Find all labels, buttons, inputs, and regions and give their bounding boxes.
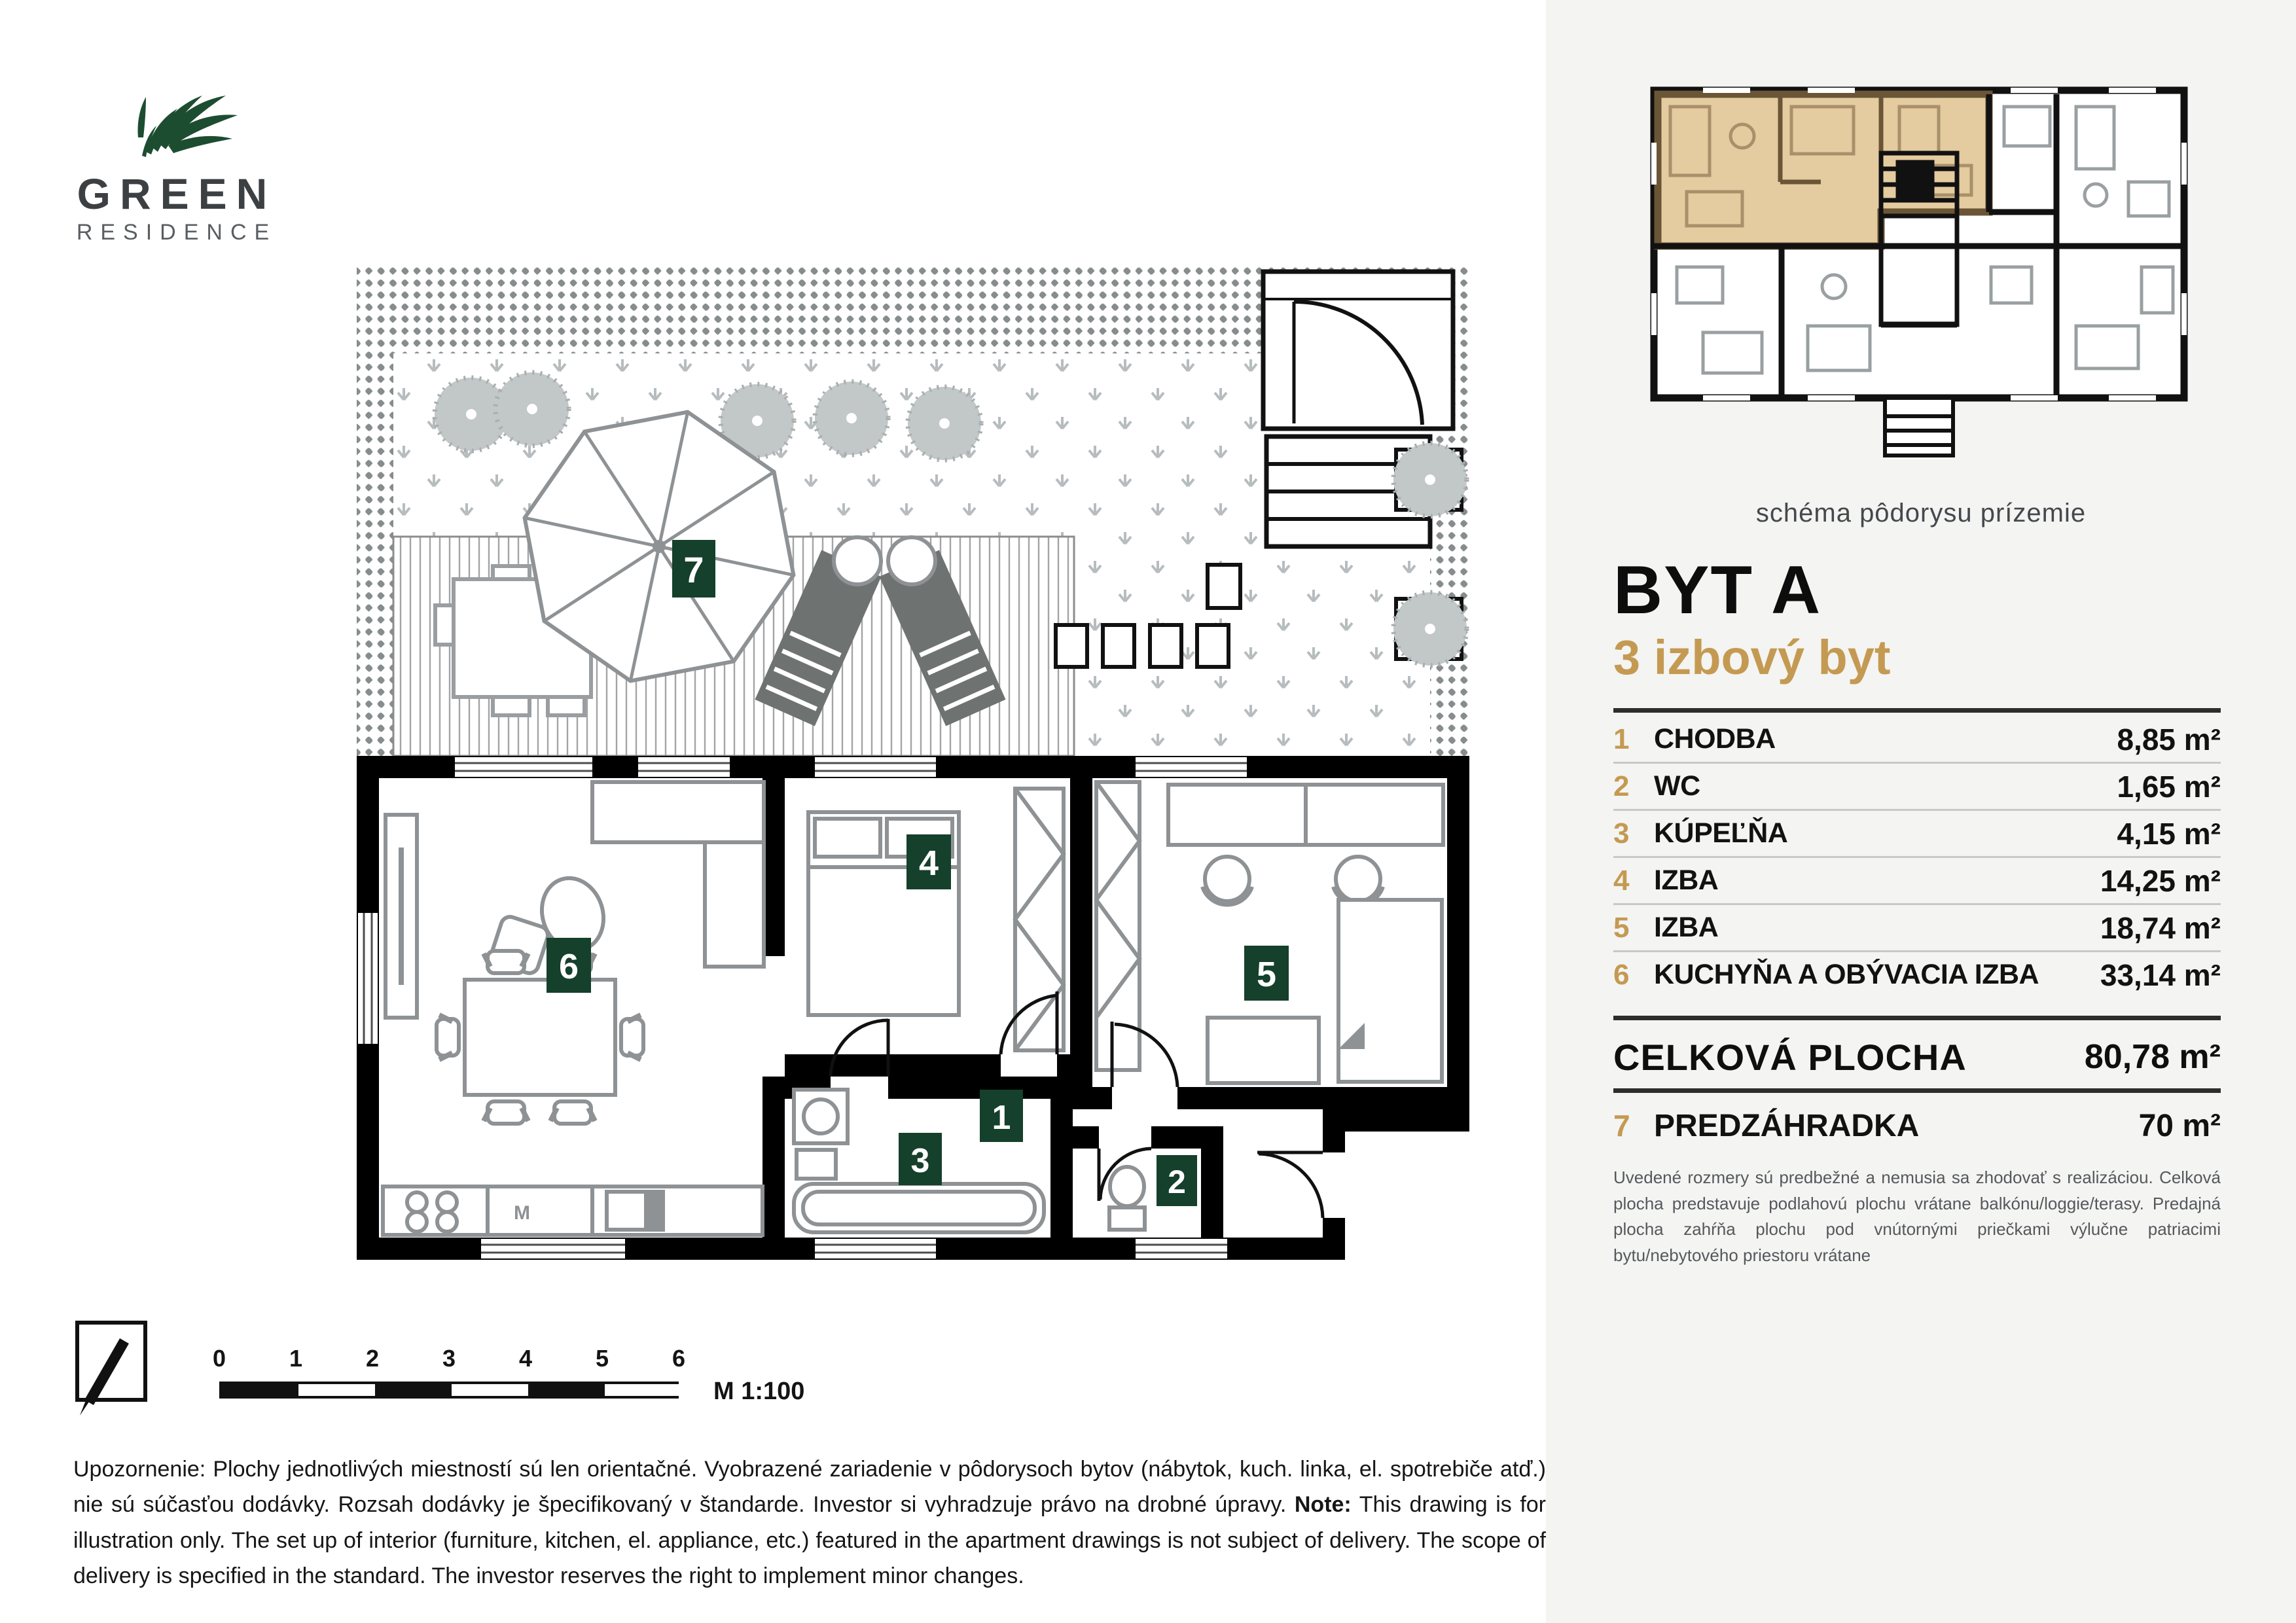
garden-area: 70 m² <box>2139 1108 2221 1144</box>
panel-disclaimer: Uvedené rozmery sú predbežné a nemusia s… <box>1613 1165 2221 1268</box>
room-label: KUCHYŇA A OBÝVACIA IZBA <box>1654 959 2100 991</box>
kitchen-counter <box>383 1186 762 1235</box>
badge-1: 1 <box>992 1099 1011 1137</box>
tree-icon <box>908 387 981 460</box>
room-label: WC <box>1654 770 2117 802</box>
room-area: 4,15 m² <box>2117 816 2221 851</box>
room-number: 1 <box>1613 723 1654 756</box>
total-label: CELKOVÁ PLOCHA <box>1613 1036 2085 1079</box>
room-number: 5 <box>1613 912 1654 944</box>
badge-3: 3 <box>911 1142 930 1180</box>
scale-tick: 5 <box>583 1345 622 1372</box>
bottom-disclaimer: Upozornenie: Plochy jednotlivých miestno… <box>73 1452 1546 1594</box>
divider-thick <box>1613 1088 2221 1093</box>
badge-7: 7 <box>683 549 704 590</box>
tree-icon <box>495 372 569 446</box>
toilet-icon <box>1109 1167 1145 1230</box>
floorplan-drawing: M <box>357 239 1469 1266</box>
total-area: 80,78 m² <box>2085 1037 2221 1077</box>
side-table <box>888 537 935 584</box>
total-row: CELKOVÁ PLOCHA 80,78 m² <box>1613 1026 2221 1088</box>
info-panel: schéma pôdorysu prízemie BYT A 3 izbový … <box>1546 0 2296 1623</box>
scale-tick: 6 <box>659 1345 698 1372</box>
badge-6: 6 <box>559 947 579 986</box>
room-number: 3 <box>1613 817 1654 850</box>
brand-name: GREEN <box>69 169 285 219</box>
scale-tick: 4 <box>506 1345 545 1372</box>
room-table: 1 CHODBA 8,85 m² 2 WC 1,65 m² 3 KÚPEĽŇA … <box>1613 717 2221 997</box>
leaf-icon <box>101 27 252 165</box>
divider-thick <box>1613 708 2221 713</box>
table-row: 4 IZBA 14,25 m² <box>1613 858 2221 903</box>
room-area: 8,85 m² <box>2117 722 2221 757</box>
shrub-icon <box>1393 443 1467 516</box>
badge-4: 4 <box>919 844 939 883</box>
garden-row: 7 PREDZÁHRADKA 70 m² <box>1613 1096 2221 1156</box>
tree-icon <box>815 382 888 455</box>
badge-2: 2 <box>1168 1164 1186 1200</box>
unit-subtitle: 3 izbový byt <box>1613 633 2221 682</box>
table-row: 3 KÚPEĽŇA 4,15 m² <box>1613 811 2221 856</box>
scale-tick: 2 <box>353 1345 392 1372</box>
scale-tick: 1 <box>276 1345 315 1372</box>
kitchen-m-label: M <box>514 1202 530 1224</box>
schema-caption: schéma pôdorysu prízemie <box>1546 499 2296 528</box>
brand-logo: GREEN RESIDENCE <box>69 27 285 245</box>
building-schema <box>1624 45 2214 470</box>
room-number: 6 <box>1613 959 1654 991</box>
table-row: 2 WC 1,65 m² <box>1613 764 2221 809</box>
room-label: KÚPEĽŇA <box>1654 817 2117 849</box>
bedroom5-furniture <box>1096 782 1443 1083</box>
garden-number: 7 <box>1613 1108 1654 1143</box>
room-label: IZBA <box>1654 865 2100 897</box>
unit-summary: BYT A 3 izbový byt 1 CHODBA 8,85 m² 2 WC… <box>1613 556 2221 1268</box>
floorplan: M <box>357 239 1469 1266</box>
disclaimer-en-lead: Note: <box>1295 1492 1352 1517</box>
table-row: 1 CHODBA 8,85 m² <box>1613 717 2221 762</box>
room-area: 18,74 m² <box>2100 910 2221 946</box>
scale-bar-segments <box>219 1382 679 1399</box>
scale-ratio-label: M 1:100 <box>713 1378 804 1406</box>
room-label: IZBA <box>1654 912 2100 944</box>
garden-label: PREDZÁHRADKA <box>1654 1108 2139 1144</box>
room-area: 33,14 m² <box>2100 957 2221 993</box>
room-area: 1,65 m² <box>2117 769 2221 804</box>
unit-title: BYT A <box>1613 556 2221 624</box>
room-label: CHODBA <box>1654 723 2117 755</box>
badge-5: 5 <box>1257 955 1276 994</box>
shrub-icon <box>1393 592 1467 666</box>
scale-tick: 3 <box>429 1345 469 1372</box>
room-number: 4 <box>1613 865 1654 897</box>
table-row: 5 IZBA 18,74 m² <box>1613 905 2221 950</box>
scale-bar: 0 1 2 3 4 5 6 M 1:100 <box>219 1345 808 1417</box>
brand-subname: RESIDENCE <box>69 220 285 245</box>
side-table <box>834 537 881 584</box>
scale-tick: 0 <box>200 1345 239 1372</box>
room-area: 14,25 m² <box>2100 863 2221 899</box>
brochure-page: GREEN RESIDENCE <box>0 0 2296 1623</box>
room-number: 2 <box>1613 770 1654 803</box>
bedroom4-furniture <box>808 789 1064 1050</box>
table-row: 6 KUCHYŇA A OBÝVACIA IZBA 33,14 m² <box>1613 952 2221 997</box>
disclaimer-sk-lead: Upozornenie: <box>73 1457 206 1482</box>
divider-thick <box>1613 1016 2221 1020</box>
garden-hatch-left <box>357 265 393 756</box>
north-arrow-icon <box>73 1319 158 1420</box>
